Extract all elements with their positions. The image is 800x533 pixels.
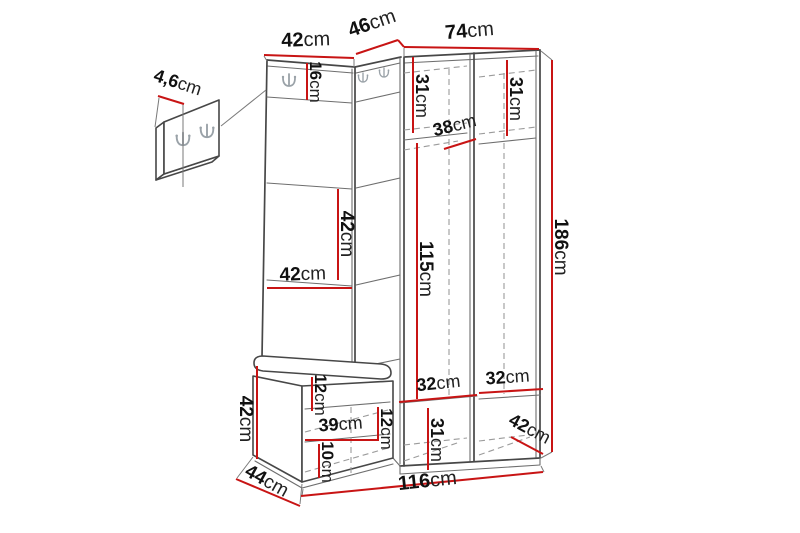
hallway-unit-dimension-diagram: 42cm 46cm 74cm 16cm 4,6cm 31cm 31cm	[0, 0, 800, 533]
dimension-annotations: 42cm 46cm 74cm 16cm 4,6cm 31cm 31cm	[151, 5, 571, 506]
dim-top-corner-width: 46cm	[345, 5, 404, 54]
svg-text:32cm: 32cm	[485, 366, 530, 389]
dim-corner-shelf-width: 38cm	[431, 110, 479, 149]
svg-text:12cm: 12cm	[377, 408, 396, 450]
dim-top-left-width: 42cm	[264, 28, 354, 58]
coat-hook-icon	[358, 73, 369, 82]
dim-bottom-compartment-height: 31cm	[427, 408, 447, 470]
dim-cabinet-depth: 42cm	[506, 410, 554, 454]
svg-text:46cm: 46cm	[345, 5, 398, 42]
svg-text:116cm: 116cm	[397, 467, 458, 495]
coat-hook-icon	[379, 68, 390, 77]
dim-bench-opening-height: 12cm	[377, 407, 396, 450]
dim-top-wardrobe-width: 74cm	[404, 18, 539, 49]
svg-text:115cm: 115cm	[415, 241, 436, 297]
svg-text:42cm: 42cm	[336, 211, 357, 257]
dim-left-shelf-width: 42cm	[267, 263, 352, 288]
dimension-diagram-canvas: 42cm 46cm 74cm 16cm 4,6cm 31cm 31cm	[0, 0, 800, 533]
svg-text:42cm: 42cm	[281, 28, 331, 52]
dim-bottom-right-shelf-width: 32cm	[479, 366, 543, 393]
svg-text:16cm: 16cm	[306, 61, 325, 103]
svg-text:31cm: 31cm	[427, 418, 447, 462]
wall-hook-panel-detail	[155, 90, 266, 187]
svg-text:39cm: 39cm	[318, 413, 363, 436]
svg-text:10cm: 10cm	[318, 441, 337, 483]
svg-text:31cm: 31cm	[412, 74, 432, 118]
svg-text:12cm: 12cm	[311, 374, 330, 416]
dim-hanging-space-height: 115cm	[415, 143, 436, 399]
dim-left-shelf-gap-height: 42cm	[336, 189, 357, 280]
svg-text:4,6cm: 4,6cm	[151, 65, 204, 99]
dim-bench-shelf-gap: 10cm	[318, 441, 337, 483]
svg-text:42cm: 42cm	[279, 263, 326, 286]
dim-total-height: 186cm	[550, 60, 571, 452]
dim-left-top-shelf-depth: 31cm	[412, 57, 432, 133]
coat-hook-icon	[282, 74, 296, 86]
svg-text:42cm: 42cm	[506, 410, 554, 448]
svg-text:31cm: 31cm	[506, 77, 526, 121]
dim-hook-panel-height: 16cm	[306, 61, 325, 103]
svg-text:42cm: 42cm	[235, 396, 256, 442]
detail-pointer-line	[221, 90, 266, 126]
dim-bench-rail-height: 12cm	[311, 374, 330, 416]
svg-text:74cm: 74cm	[444, 18, 495, 44]
svg-text:32cm: 32cm	[415, 371, 461, 395]
svg-text:38cm: 38cm	[431, 110, 479, 140]
svg-text:186cm: 186cm	[550, 218, 571, 275]
